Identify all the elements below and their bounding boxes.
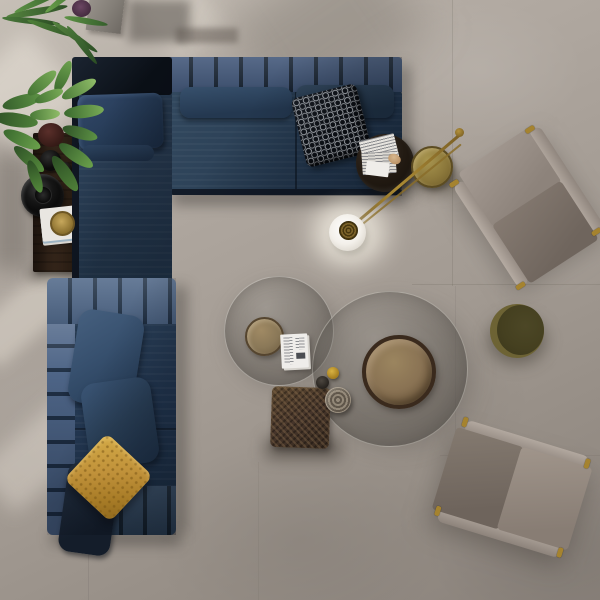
magazine-text — [283, 337, 293, 364]
sofa-lower-section — [47, 278, 176, 535]
gold-votive — [327, 367, 339, 379]
purple-plant — [72, 0, 91, 17]
plant-leaf — [30, 108, 61, 121]
living-room-topdown-photo — [0, 0, 600, 600]
side-table-magazine — [365, 161, 390, 178]
metal-vessel — [325, 387, 351, 413]
woven-pouf — [270, 386, 331, 449]
magazine-photo-block — [296, 352, 305, 358]
olive-pouf — [490, 304, 544, 358]
bronze-tray-table — [362, 335, 436, 409]
concrete-planter — [86, 0, 126, 34]
coffee-table-magazines — [280, 333, 309, 368]
gold-dish — [50, 211, 75, 236]
olive-pouf-top — [497, 305, 544, 355]
magazine-text — [295, 337, 305, 349]
dark-votive — [316, 376, 329, 389]
mini-bronze-table — [245, 317, 284, 356]
plant-leaf — [61, 122, 99, 143]
plant-leaf — [24, 159, 46, 195]
leafy-plant — [0, 75, 120, 195]
lamp-pivot — [455, 128, 464, 137]
plant-leaf — [63, 103, 104, 120]
palm-plant — [0, 0, 140, 70]
lamp-globe-cap — [339, 221, 358, 240]
